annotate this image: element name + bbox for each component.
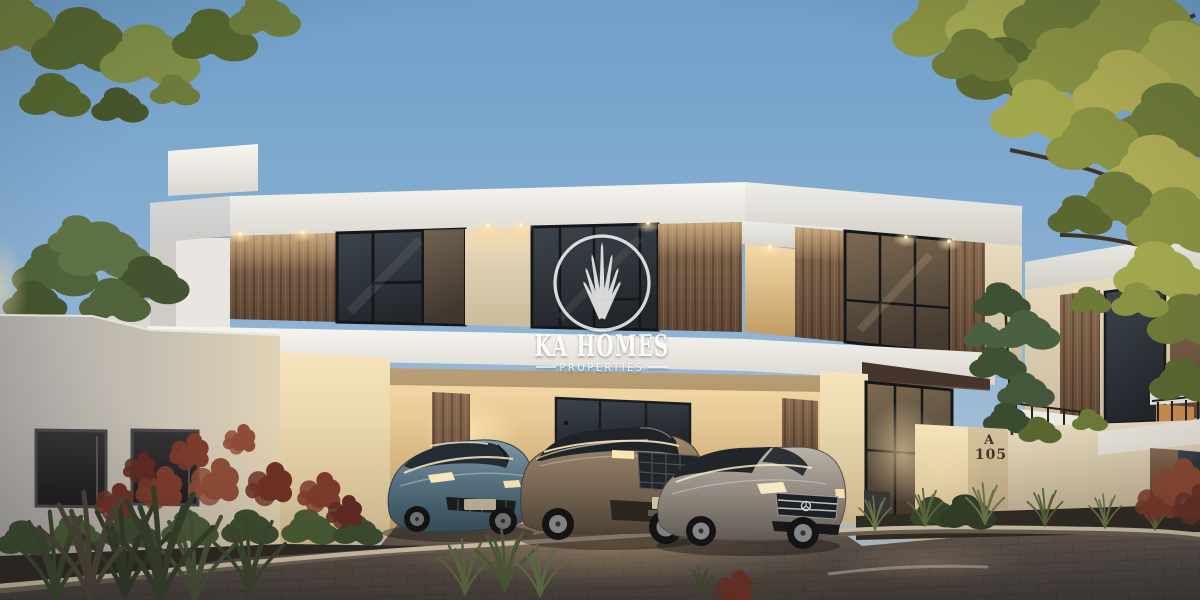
watermark-brand: KA HOMES: [535, 329, 670, 364]
render-canvas: A 105: [0, 0, 1200, 600]
villa-render-image: A 105: [0, 0, 1200, 600]
watermark-tagline: PROPERTIES: [560, 361, 645, 374]
